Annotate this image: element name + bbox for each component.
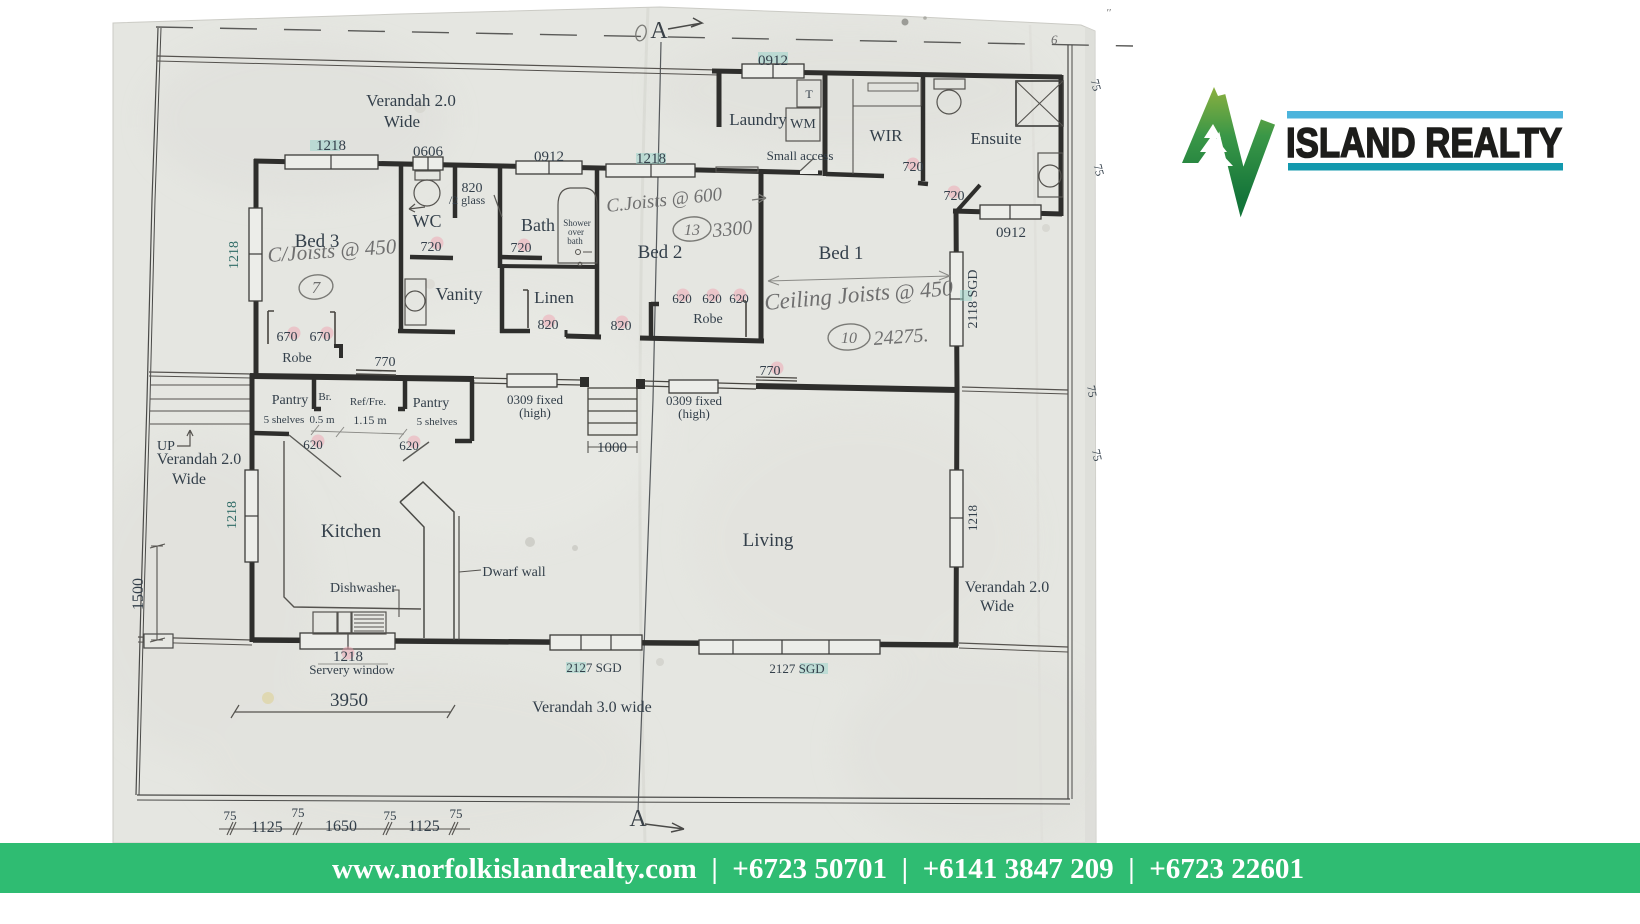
svg-text:75: 75 [224,808,237,823]
svg-text:Wide: Wide [172,471,206,488]
svg-text:1218: 1218 [316,138,346,154]
svg-text:720: 720 [511,241,532,256]
svg-text:Verandah 2.0: Verandah 2.0 [965,579,1049,596]
svg-text:ISLAND REALTY: ISLAND REALTY [1286,119,1562,166]
svg-text:1125: 1125 [251,819,282,836]
svg-text:WC: WC [413,211,442,231]
svg-text:(high): (high) [678,406,710,421]
svg-text:1000: 1000 [597,440,627,456]
svg-text:3300: 3300 [711,217,754,242]
svg-text:0912: 0912 [996,225,1026,241]
svg-text:5 shelves: 5 shelves [264,414,305,426]
svg-text:Kitchen: Kitchen [321,521,382,542]
svg-text:720: 720 [903,160,924,175]
svg-text:A: A [650,18,668,44]
svg-text:Br.: Br. [318,391,331,403]
svg-text:(high): (high) [519,405,551,420]
svg-text:620: 620 [672,291,692,306]
svg-text:T: T [805,87,813,101]
svg-text:Bed 1: Bed 1 [819,243,864,264]
svg-text:2127 SGD: 2127 SGD [566,660,621,675]
svg-text:Robe: Robe [693,312,723,327]
svg-text:75: 75 [292,805,305,820]
svg-text:620: 620 [729,291,749,306]
svg-text:Robe: Robe [282,351,312,366]
svg-text:Pantry: Pantry [413,396,450,411]
svg-text:Small access: Small access [767,148,834,163]
svg-text:1650: 1650 [325,818,357,835]
svg-text:Verandah 2.0: Verandah 2.0 [366,91,456,110]
svg-text:770: 770 [760,364,781,379]
svg-text:0606: 0606 [413,144,444,160]
svg-text:Ensuite: Ensuite [971,129,1022,148]
svg-text:5 shelves: 5 shelves [417,416,458,428]
svg-text:Ref/Fre.: Ref/Fre. [350,396,387,408]
svg-text:24275.: 24275. [873,324,929,350]
svg-text:Living: Living [743,530,794,551]
svg-text:13: 13 [684,222,700,239]
svg-text:720: 720 [944,189,965,204]
svg-text:Verandah 3.0 wide: Verandah 3.0 wide [532,699,652,716]
svg-text:10: 10 [841,330,857,347]
svg-text:1.15 m: 1.15 m [353,413,387,427]
svg-text:820: 820 [611,319,632,334]
svg-text:/2 glass: /2 glass [449,193,486,207]
svg-text:Linen: Linen [534,288,574,307]
svg-text:1218: 1218 [965,505,980,531]
svg-text:620: 620 [702,291,722,306]
svg-text:Wide: Wide [980,598,1014,615]
svg-text:2118 SGD: 2118 SGD [966,270,981,329]
svg-text:Vanity: Vanity [436,284,483,304]
svg-text:Dishwasher: Dishwasher [330,581,396,596]
svg-text:75: 75 [1089,448,1105,463]
svg-text:0912: 0912 [758,53,788,69]
svg-text:WIR: WIR [869,126,903,145]
svg-text:670: 670 [310,330,331,345]
svg-text:@ 450: @ 450 [893,275,954,305]
svg-text:1218: 1218 [636,151,666,167]
svg-text:1218: 1218 [225,501,240,529]
svg-text:820: 820 [538,318,559,333]
svg-text:WM: WM [790,117,816,132]
svg-text:75: 75 [384,808,397,823]
svg-text:0912: 0912 [534,149,564,165]
svg-text:bath: bath [567,236,583,246]
svg-text:2127 SGD: 2127 SGD [769,661,824,676]
svg-text:670: 670 [277,330,298,345]
svg-text:A: A [629,806,647,832]
svg-text:75: 75 [1084,384,1100,398]
svg-text:6: 6 [1051,32,1058,47]
svg-text:0.5 m: 0.5 m [309,414,335,426]
svg-text:Dwarf wall: Dwarf wall [482,565,545,580]
svg-text:Pantry: Pantry [272,393,309,408]
svg-text:Bath: Bath [521,215,555,235]
svg-text:770: 770 [375,355,396,370]
svg-text:Bed 2: Bed 2 [638,242,683,263]
svg-text:1125: 1125 [408,818,439,835]
svg-text:Wide: Wide [384,112,420,131]
svg-text:www.norfolkislandrealty.com |: www.norfolkislandrealty.com | +6723 5070… [332,854,1304,885]
svg-text:3950: 3950 [330,690,368,711]
svg-text:1500: 1500 [130,578,147,610]
svg-text:620: 620 [303,437,323,452]
svg-text:1218: 1218 [227,241,242,269]
svg-text:75: 75 [450,806,463,821]
svg-text:UP: UP [157,439,175,454]
svg-text:720: 720 [421,240,442,255]
svg-text:′′: ′′ [1106,7,1111,19]
svg-text:Laundry: Laundry [729,110,787,129]
svg-text:620: 620 [399,438,419,453]
